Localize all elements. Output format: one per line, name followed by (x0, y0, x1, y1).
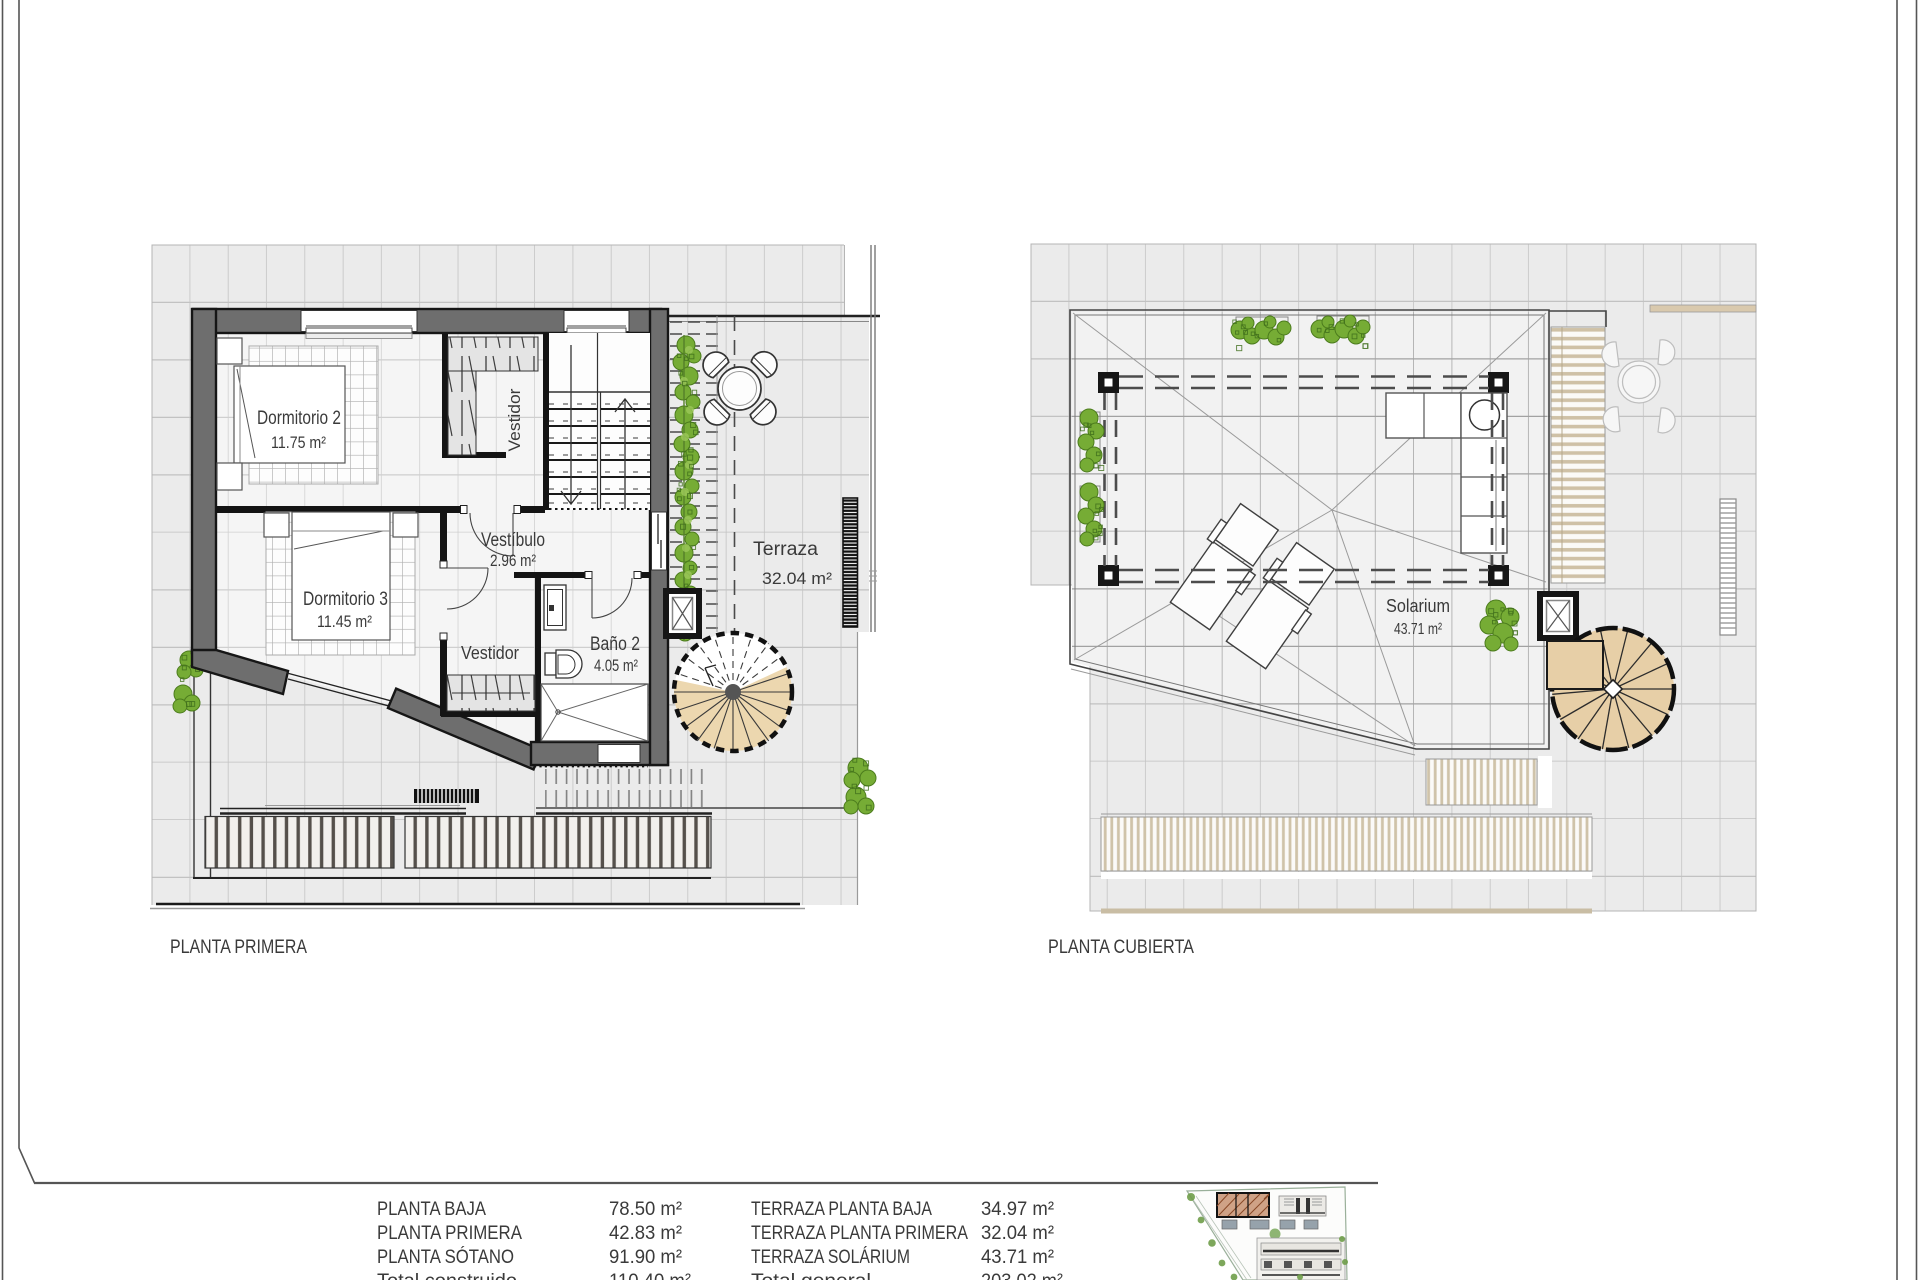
svg-text:PLANTA CUBIERTA: PLANTA CUBIERTA (1048, 937, 1194, 958)
svg-text:43.71 m²: 43.71 m² (1394, 621, 1443, 638)
svg-text:Solarium: Solarium (1386, 596, 1450, 616)
svg-text:Dormitorio 3: Dormitorio 3 (303, 589, 388, 610)
svg-text:Vestidor: Vestidor (461, 643, 519, 663)
svg-text:Terraza: Terraza (753, 539, 818, 560)
svg-text:TERRAZA PLANTA BAJA: TERRAZA PLANTA BAJA (751, 1199, 932, 1220)
svg-text:110.40 m²: 110.40 m² (609, 1271, 691, 1280)
svg-text:11.45 m²: 11.45 m² (317, 612, 372, 631)
svg-text:TERRAZA PLANTA PRIMERA: TERRAZA PLANTA PRIMERA (751, 1223, 968, 1244)
svg-text:34.97 m²: 34.97 m² (981, 1199, 1054, 1220)
svg-text:11.75 m²: 11.75 m² (271, 433, 326, 452)
svg-text:PLANTA BAJA: PLANTA BAJA (377, 1199, 486, 1220)
svg-text:PLANTA SÓTANO: PLANTA SÓTANO (377, 1246, 514, 1268)
svg-text:Baño 2: Baño 2 (590, 634, 640, 655)
svg-text:42.83 m²: 42.83 m² (609, 1223, 682, 1244)
svg-text:78.50 m²: 78.50 m² (609, 1199, 682, 1220)
svg-text:Total construido: Total construido (377, 1271, 517, 1280)
svg-text:TERRAZA SOLÁRIUM: TERRAZA SOLÁRIUM (751, 1247, 910, 1268)
svg-text:2.96 m²: 2.96 m² (490, 551, 536, 570)
svg-text:PLANTA PRIMERA: PLANTA PRIMERA (170, 937, 307, 958)
svg-text:Dormitorio 2: Dormitorio 2 (257, 408, 341, 429)
svg-text:32.04 m²: 32.04 m² (762, 569, 832, 588)
svg-text:43.71 m²: 43.71 m² (981, 1247, 1054, 1268)
svg-text:Vestidor: Vestidor (505, 388, 524, 451)
svg-text:Total general: Total general (751, 1271, 871, 1280)
svg-text:32.04 m²: 32.04 m² (981, 1223, 1054, 1244)
svg-text:PLANTA PRIMERA: PLANTA PRIMERA (377, 1223, 522, 1244)
svg-text:4.05 m²: 4.05 m² (594, 656, 638, 675)
svg-text:91.90 m²: 91.90 m² (609, 1247, 682, 1268)
svg-text:Vestíbulo: Vestíbulo (481, 530, 545, 551)
svg-text:203.02 m²: 203.02 m² (981, 1271, 1063, 1280)
